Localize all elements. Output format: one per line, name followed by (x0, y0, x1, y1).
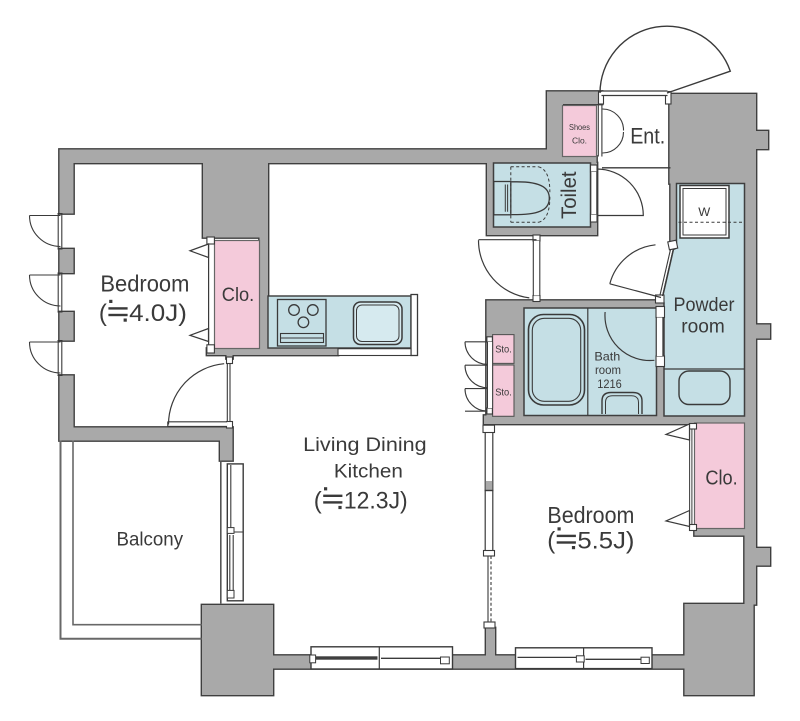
svg-text:Kitchen: Kitchen (334, 460, 403, 482)
svg-text:Sto.: Sto. (495, 344, 512, 356)
svg-text:Shoes: Shoes (569, 122, 590, 132)
svg-text:room: room (595, 363, 621, 377)
svg-text:Bath: Bath (594, 349, 620, 363)
svg-text:Bedroom: Bedroom (100, 271, 189, 297)
svg-text:Living Dining: Living Dining (303, 435, 427, 456)
svg-text:Bedroom: Bedroom (547, 502, 634, 528)
svg-text:5.5J): 5.5J) (577, 528, 634, 555)
svg-text:Clo.: Clo. (222, 285, 254, 306)
svg-text:(: ( (99, 300, 107, 327)
svg-text:4.0J): 4.0J) (129, 300, 187, 327)
svg-text:Ent.: Ent. (630, 124, 665, 149)
svg-text:room: room (681, 315, 725, 337)
svg-text:(: ( (547, 528, 555, 555)
svg-text:Sto.: Sto. (495, 387, 512, 399)
svg-text:Clo.: Clo. (705, 468, 737, 490)
svg-text:W: W (698, 207, 710, 219)
svg-text:Clo.: Clo. (572, 136, 587, 146)
svg-text:12.3J): 12.3J) (344, 487, 408, 514)
svg-text:1216: 1216 (597, 377, 622, 391)
svg-text:(: ( (314, 487, 322, 514)
svg-text:Toilet: Toilet (558, 171, 581, 219)
svg-text:Powder: Powder (674, 294, 735, 316)
svg-text:Balcony: Balcony (117, 530, 184, 551)
